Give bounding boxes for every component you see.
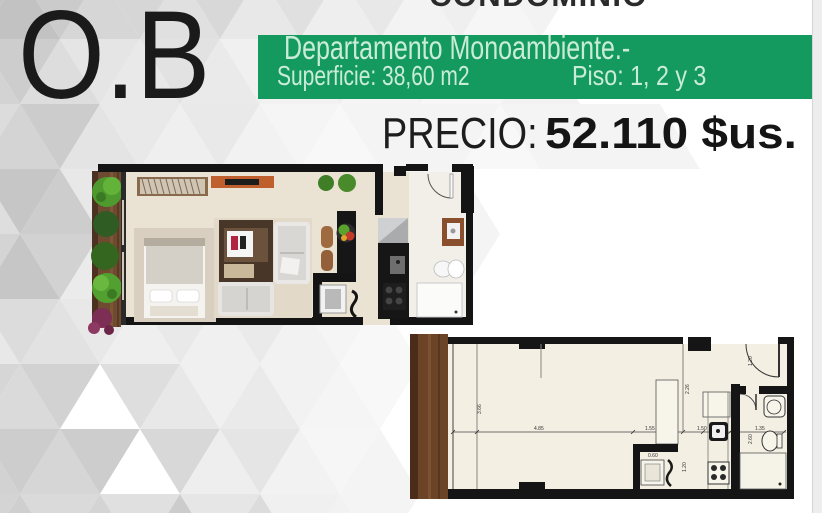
- svg-text:1.20: 1.20: [682, 462, 688, 472]
- svg-text:1.55: 1.55: [645, 426, 655, 432]
- svg-text:1.20: 1.20: [748, 356, 754, 366]
- svg-text:1.35: 1.35: [755, 426, 765, 432]
- svg-text:2.60: 2.60: [748, 434, 754, 444]
- svg-text:0.60: 0.60: [648, 453, 658, 459]
- svg-text:4.85: 4.85: [534, 426, 544, 432]
- svg-text:2.26: 2.26: [685, 384, 691, 394]
- svg-text:3.66: 3.66: [477, 404, 483, 414]
- svg-text:1.50: 1.50: [697, 426, 707, 432]
